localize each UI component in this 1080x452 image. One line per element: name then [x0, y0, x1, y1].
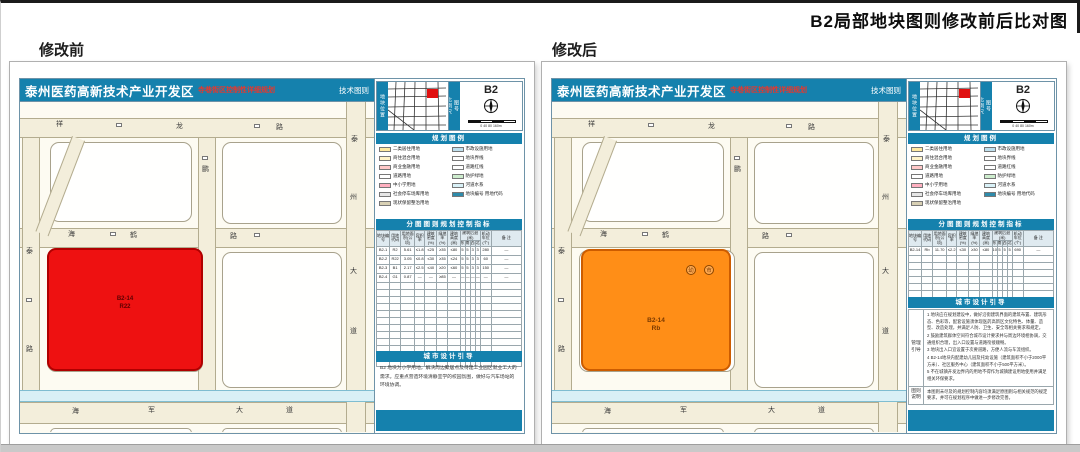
- road-label: 鹏: [202, 166, 209, 173]
- city-block: [754, 252, 874, 388]
- sheet-number: B2: [460, 84, 522, 96]
- table-row-empty: [377, 338, 522, 345]
- sheet-header: 泰州医药高新技术产业开发区 寺巷街区控制性详细规划 技术图则: [20, 79, 374, 101]
- legend-item: 商住混合用地: [911, 155, 981, 161]
- table-row: B2-3B12.17≤2.5≤40≥20≤605533150—: [377, 264, 522, 273]
- legend-swatch: [984, 192, 996, 197]
- legend-swatch: [911, 183, 923, 188]
- road-tick: [26, 298, 32, 302]
- facility-symbol-kindergarten: 幼: [686, 265, 696, 275]
- road-label: 泰: [558, 248, 565, 255]
- notes-text: B2 地块为小学用地，解决周边聚居点及待建工业园区就业工人的需求。应重点营造环境…: [377, 363, 521, 393]
- legend-label: 商业金融用地: [393, 164, 420, 170]
- road-label: 泰: [883, 136, 890, 143]
- legend-swatch: [984, 174, 996, 179]
- legend-title: 规划图例: [908, 133, 1054, 144]
- legend-swatch: [911, 147, 923, 152]
- road-tick: [558, 298, 564, 302]
- road-label: 海: [72, 408, 79, 415]
- road-label: 海: [604, 408, 611, 415]
- legend-item: 道路红线: [984, 164, 1054, 170]
- table-row-empty: [377, 303, 522, 310]
- legend-column: 市政设施用地地块界线道路红线防护绿地河道水系地块编号 用地代码: [452, 146, 522, 209]
- sheet-title: 泰州医药高新技术产业开发区: [557, 81, 726, 100]
- legend-swatch: [911, 165, 923, 170]
- legend-label: 社会停车场库用地: [925, 191, 961, 197]
- legend-label: 道路红线: [466, 164, 484, 170]
- legend-label: 商住混合用地: [393, 155, 420, 161]
- legend-swatch: [984, 183, 996, 188]
- plan-map: 幼 市 B2-14 Rb 祥 龙 路 海 鹤 路 海 军 大 道 泰 州: [552, 101, 906, 432]
- road-label: 泰: [26, 248, 33, 255]
- facility-symbol-market: 市: [704, 265, 714, 275]
- legend-label: 二类居住用地: [393, 146, 420, 152]
- legend-item: 地块编号 用地代码: [452, 191, 522, 197]
- legend-item: 中小学用地: [379, 182, 449, 188]
- inset-mid-strip: 图号 比例尺: [981, 82, 992, 130]
- plot-code: B2-14: [49, 296, 201, 304]
- sheet-number-label: 图号: [453, 100, 460, 112]
- guidance-side-label: 管理 引导: [909, 310, 924, 386]
- legend-column: 市政设施用地地块界线道路红线防护绿地河道水系地块编号 用地代码: [984, 146, 1054, 209]
- city-block: [222, 142, 342, 224]
- after-label: 修改后: [552, 39, 597, 60]
- notes-title: 城市设计引导: [376, 351, 522, 362]
- legend-label: 市政设施用地: [998, 146, 1025, 152]
- legend-swatch: [379, 201, 391, 206]
- plot-after-orange: 幼 市 B2-14 Rb: [581, 249, 731, 371]
- plot-before-red: B2-14 R22: [47, 248, 203, 371]
- table-row: B2-2R223.05≤0.8≤30≥35≤24553360—: [377, 255, 522, 264]
- legend: 二类居住用地商住混合用地商业金融用地道路用地中小学用地社会停车场库用地现状保留整…: [911, 146, 1053, 209]
- canal: [552, 390, 906, 402]
- legend-item: 地块界线: [984, 155, 1054, 161]
- road-label: 道: [286, 407, 293, 414]
- table-row-empty: [909, 255, 1054, 262]
- legend-item: 现状保留整治用地: [379, 200, 449, 206]
- road-label: 军: [680, 407, 687, 414]
- legend-item: 二类居住用地: [911, 146, 981, 152]
- legend-item: 地块编号 用地代码: [984, 191, 1054, 197]
- city-block: [50, 428, 192, 432]
- road-label: 大: [350, 268, 357, 275]
- scale-bar: [1000, 120, 1048, 123]
- plot-use-code: R22: [49, 304, 201, 312]
- plan-sheet: 泰州医药高新技术产业开发区 寺巷街区控制性详细规划 技术图则: [19, 78, 525, 434]
- table-row-empty: [377, 296, 522, 303]
- legend-swatch: [452, 165, 464, 170]
- legend-label: 防护绿地: [466, 173, 484, 179]
- road-label: 道: [882, 328, 889, 335]
- road-label: 路: [230, 233, 237, 240]
- table-row-empty: [377, 282, 522, 289]
- road-label: 鹏: [734, 166, 741, 173]
- road-label: 州: [350, 194, 357, 201]
- legend-swatch: [379, 183, 391, 188]
- city-block: [582, 428, 724, 432]
- table-row-empty: [909, 276, 1054, 283]
- road-label: 道: [350, 328, 357, 335]
- minimap-grid-icon: [920, 82, 978, 130]
- road-tick: [734, 156, 740, 160]
- inset-left-strip: 地块位置: [377, 82, 388, 130]
- table-row: B2-1R25.61≤1.8≤25≥35≤805533280—: [377, 246, 522, 255]
- plot-label: B2-14 R22: [49, 296, 201, 312]
- statement-text: 本图则未尽及的规划控制内容均须满足原图则与相关规范的规定要求，并可在规划程序中做…: [924, 387, 1053, 404]
- comparison-page: B2局部地块图则修改前后比对图 修改前 修改后 泰州医药高新技术产业开发区 寺巷…: [0, 0, 1080, 452]
- legend-item: 市政设施用地: [452, 146, 522, 152]
- legend-label: 防护绿地: [998, 173, 1016, 179]
- road-left: [554, 138, 572, 402]
- legend: 二类居住用地商住混合用地商业金融用地道路用地中小学用地社会停车场库用地现状保留整…: [379, 146, 521, 209]
- road-label: 大: [236, 407, 243, 414]
- sidebar-footer: [908, 410, 1054, 431]
- page-title: B2局部地块图则修改前后比对图: [810, 7, 1068, 32]
- minimap-highlight: [427, 89, 438, 98]
- legend-swatch: [911, 174, 923, 179]
- sheet-title: 泰州医药高新技术产业开发区: [25, 81, 194, 100]
- road-label: 州: [882, 194, 889, 201]
- legend-item: 防护绿地: [984, 173, 1054, 179]
- panel-before: 泰州医药高新技术产业开发区 寺巷街区控制性详细规划 技术图则: [9, 61, 535, 449]
- legend-item: 商住混合用地: [379, 155, 449, 161]
- guidance-item: 1 地块应在规划建设中，做好沿街建筑界面的建筑布置、建筑形态、色彩等，配套设施须…: [927, 312, 1050, 332]
- inset-mid-strip: 图号 比例尺: [449, 82, 460, 130]
- minimap: [920, 82, 981, 130]
- legend-swatch: [379, 165, 391, 170]
- inset-left-strip: 地块位置: [909, 82, 920, 130]
- legend-label: 商住混合用地: [925, 155, 952, 161]
- plan-map: B2-14 R22 祥 龙 路 海 鹤 路 海 军 大 道 泰 州 大 道 泰: [20, 101, 374, 432]
- road-label: 军: [148, 407, 155, 414]
- table-row-empty: [377, 317, 522, 324]
- legend-item: 道路用地: [379, 173, 449, 179]
- legend-item: 中小学用地: [911, 182, 981, 188]
- notes-title: 城市设计引导: [908, 297, 1054, 308]
- sheet-sidebar: 地块位置: [906, 79, 1056, 433]
- legend-label: 社会停车场库用地: [393, 191, 429, 197]
- indicator-table: 地块编号用地代码用地面积(公顷)容积率建筑密度(%)绿地率(%)建筑高度(米)建…: [908, 230, 1054, 305]
- road-right: [878, 102, 898, 432]
- guidance-items: 1 地块应在规划建设中，做好沿街建筑界面的建筑布置、建筑形态、色彩等，配套设施须…: [924, 310, 1053, 386]
- road-tick: [254, 124, 260, 128]
- sheet-number-box: B2 0 40 80 160m: [992, 82, 1054, 130]
- scale-bar-labels: 0 40 80 160m: [460, 124, 522, 128]
- road-label: 祥: [56, 121, 63, 128]
- city-block: [754, 142, 874, 224]
- road-tick: [254, 233, 260, 237]
- legend-swatch: [452, 174, 464, 179]
- legend-swatch: [379, 156, 391, 161]
- plan-sheet: 泰州医药高新技术产业开发区 寺巷街区控制性详细规划 技术图则: [551, 78, 1057, 434]
- road-label: 龙: [176, 123, 183, 130]
- indicator-table-wrap: 地块编号用地代码用地面积(公顷)容积率建筑密度(%)绿地率(%)建筑高度(米)建…: [376, 230, 522, 367]
- legend-label: 二类居住用地: [925, 146, 952, 152]
- sheet-corner-label: 技术图则: [339, 85, 369, 96]
- legend-item: 社会停车场库用地: [911, 191, 981, 197]
- legend-label: 道路用地: [393, 173, 411, 179]
- legend-label: 中小学用地: [925, 182, 948, 188]
- minimap: [388, 82, 449, 130]
- road-label: 路: [26, 346, 33, 353]
- legend-swatch: [452, 147, 464, 152]
- table-row-empty: [377, 324, 522, 331]
- road-label: 祥: [588, 121, 595, 128]
- plot-label: B2-14 Rb: [583, 317, 729, 334]
- legend-swatch: [452, 156, 464, 161]
- page-bottom-edge: [1, 444, 1080, 452]
- legend-label: 道路红线: [998, 164, 1016, 170]
- road-label: 路: [762, 233, 769, 240]
- legend-swatch: [379, 174, 391, 179]
- legend-swatch: [452, 192, 464, 197]
- legend-item: 二类居住用地: [379, 146, 449, 152]
- sheet-number: B2: [992, 84, 1054, 96]
- road-tick: [642, 232, 648, 236]
- guidance-item: 3 地块出入口宜设置于次要道路，方便人流与车流组织。: [927, 347, 1050, 354]
- sheet-number-label: 图号: [985, 100, 992, 112]
- legend-item: 现状保留整治用地: [911, 200, 981, 206]
- table-row-empty: [909, 283, 1054, 290]
- legend-item: 商业金融用地: [911, 164, 981, 170]
- guidance-row: 管理 引导 1 地块应在规划建设中，做好沿街建筑界面的建筑布置、建筑形态、色彩等…: [909, 310, 1053, 387]
- legend-label: 现状保留整治用地: [393, 200, 429, 206]
- road-label: 海: [600, 231, 607, 238]
- city-block: [754, 428, 874, 432]
- legend-column: 二类居住用地商住混合用地商业金融用地道路用地中小学用地社会停车场库用地现状保留整…: [911, 146, 981, 209]
- legend-item: 商业金融用地: [379, 164, 449, 170]
- scale-bar-labels: 0 40 80 160m: [992, 124, 1054, 128]
- before-label: 修改前: [39, 39, 84, 60]
- city-block: [222, 428, 342, 432]
- compass-icon: [1015, 98, 1031, 114]
- minimap-highlight: [959, 89, 970, 98]
- road-label: 大: [882, 268, 889, 275]
- road-label: 海: [68, 231, 75, 238]
- legend-label: 地块界线: [998, 155, 1016, 161]
- compass-icon: [483, 98, 499, 114]
- legend-label: 中小学用地: [393, 182, 416, 188]
- legend-column: 二类居住用地商住混合用地商业金融用地道路用地中小学用地社会停车场库用地现状保留整…: [379, 146, 449, 209]
- sheet-subtitle: 寺巷街区控制性详细规划: [198, 85, 275, 95]
- legend-swatch: [379, 192, 391, 197]
- statement-side-label: 图则 说明: [909, 387, 924, 404]
- legend-label: 地块界线: [466, 155, 484, 161]
- legend-swatch: [984, 147, 996, 152]
- table-row-empty: [909, 262, 1054, 269]
- road-label: 鹤: [130, 232, 137, 239]
- road-tick: [786, 124, 792, 128]
- legend-swatch: [911, 192, 923, 197]
- table-row-empty: [377, 289, 522, 296]
- legend-label: 地块编号 用地代码: [466, 191, 503, 197]
- road-top: [20, 118, 374, 138]
- legend-item: 市政设施用地: [984, 146, 1054, 152]
- plot-code: B2-14: [583, 317, 729, 325]
- road-right: [346, 102, 366, 432]
- guidance-item: 4 B2-14地块内配建幼儿园及托幼设施（建筑面积不小于2000平方米）、社区服…: [927, 355, 1050, 368]
- indicator-table-title: 分图图则规划控制指标: [376, 219, 522, 230]
- sheet-subtitle: 寺巷街区控制性详细规划: [730, 85, 807, 95]
- legend-item: 地块界线: [452, 155, 522, 161]
- indicator-table: 地块编号用地代码用地面积(公顷)容积率建筑密度(%)绿地率(%)建筑高度(米)建…: [376, 230, 522, 367]
- table-row: B2-4G10.87——≥85———————: [377, 273, 522, 282]
- city-block: [222, 252, 342, 388]
- legend-item: 道路红线: [452, 164, 522, 170]
- guidance-item: 2 鼓励建筑群体空间符合城市设计要求并与周边环境相协调，交通组织合理，出入口设置…: [927, 333, 1050, 346]
- road-label: 鹤: [662, 232, 669, 239]
- road-label: 道: [818, 407, 825, 414]
- location-inset: 地块位置: [376, 81, 523, 131]
- indicator-table-wrap: 地块编号用地代码用地面积(公顷)容积率建筑密度(%)绿地率(%)建筑高度(米)建…: [908, 230, 1054, 305]
- canal: [20, 390, 374, 402]
- statement-row: 图则 说明 本图则未尽及的规划控制内容均须满足原图则与相关规范的规定要求，并可在…: [909, 387, 1053, 404]
- table-row-empty: [909, 269, 1054, 276]
- road-label: 路: [808, 124, 815, 131]
- legend-label: 道路用地: [925, 173, 943, 179]
- table-row-empty: [377, 310, 522, 317]
- sheet-corner-label: 技术图则: [871, 85, 901, 96]
- table-row-empty: [377, 331, 522, 338]
- legend-item: 防护绿地: [452, 173, 522, 179]
- legend-swatch: [911, 156, 923, 161]
- road-left: [22, 138, 40, 402]
- road-tick: [110, 232, 116, 236]
- legend-item: 河道水系: [452, 182, 522, 188]
- minimap-grid-icon: [388, 82, 446, 130]
- indicator-table-title: 分图图则规划控制指标: [908, 219, 1054, 230]
- legend-label: 河道水系: [466, 182, 484, 188]
- road-label: 路: [276, 124, 283, 131]
- road-label: 龙: [708, 123, 715, 130]
- legend-item: 社会停车场库用地: [379, 191, 449, 197]
- legend-label: 现状保留整治用地: [925, 200, 961, 206]
- legend-label: 商业金融用地: [925, 164, 952, 170]
- road-tick: [786, 233, 792, 237]
- legend-swatch: [984, 165, 996, 170]
- legend-swatch: [379, 147, 391, 152]
- road-tick: [116, 123, 122, 127]
- sidebar-footer: [376, 410, 522, 431]
- legend-label: 市政设施用地: [466, 146, 493, 152]
- legend-swatch: [911, 201, 923, 206]
- design-guidance: 管理 引导 1 地块应在规划建设中，做好沿街建筑界面的建筑布置、建筑形态、色彩等…: [908, 309, 1054, 405]
- legend-swatch: [984, 156, 996, 161]
- legend-item: 道路用地: [911, 173, 981, 179]
- road-label: 泰: [351, 136, 358, 143]
- legend-swatch: [452, 183, 464, 188]
- location-inset: 地块位置: [908, 81, 1055, 131]
- legend-label: 河道水系: [998, 182, 1016, 188]
- guidance-item: 5 不在城镇开发边界内的用地不得作为城镇建设用地使用并满足相关环保要求。: [927, 369, 1050, 382]
- road-label: 路: [558, 346, 565, 353]
- plot-use-code: Rb: [583, 325, 729, 333]
- road-label: 大: [768, 407, 775, 414]
- sheet-sidebar: 地块位置: [374, 79, 524, 433]
- legend-item: 河道水系: [984, 182, 1054, 188]
- scale-bar: [468, 120, 516, 123]
- legend-label: 地块编号 用地代码: [998, 191, 1035, 197]
- sheet-header: 泰州医药高新技术产业开发区 寺巷街区控制性详细规划 技术图则: [552, 79, 906, 101]
- panel-after: 泰州医药高新技术产业开发区 寺巷街区控制性详细规划 技术图则: [541, 61, 1067, 449]
- sheet-number-box: B2 0 40 80 160m: [460, 82, 522, 130]
- road-tick: [648, 123, 654, 127]
- road-tick: [202, 156, 208, 160]
- table-row: B2-14Rb11.70≤2.2≤30≥30≤8010555690—: [909, 246, 1054, 255]
- legend-title: 规划图例: [376, 133, 522, 144]
- road-top: [552, 118, 906, 138]
